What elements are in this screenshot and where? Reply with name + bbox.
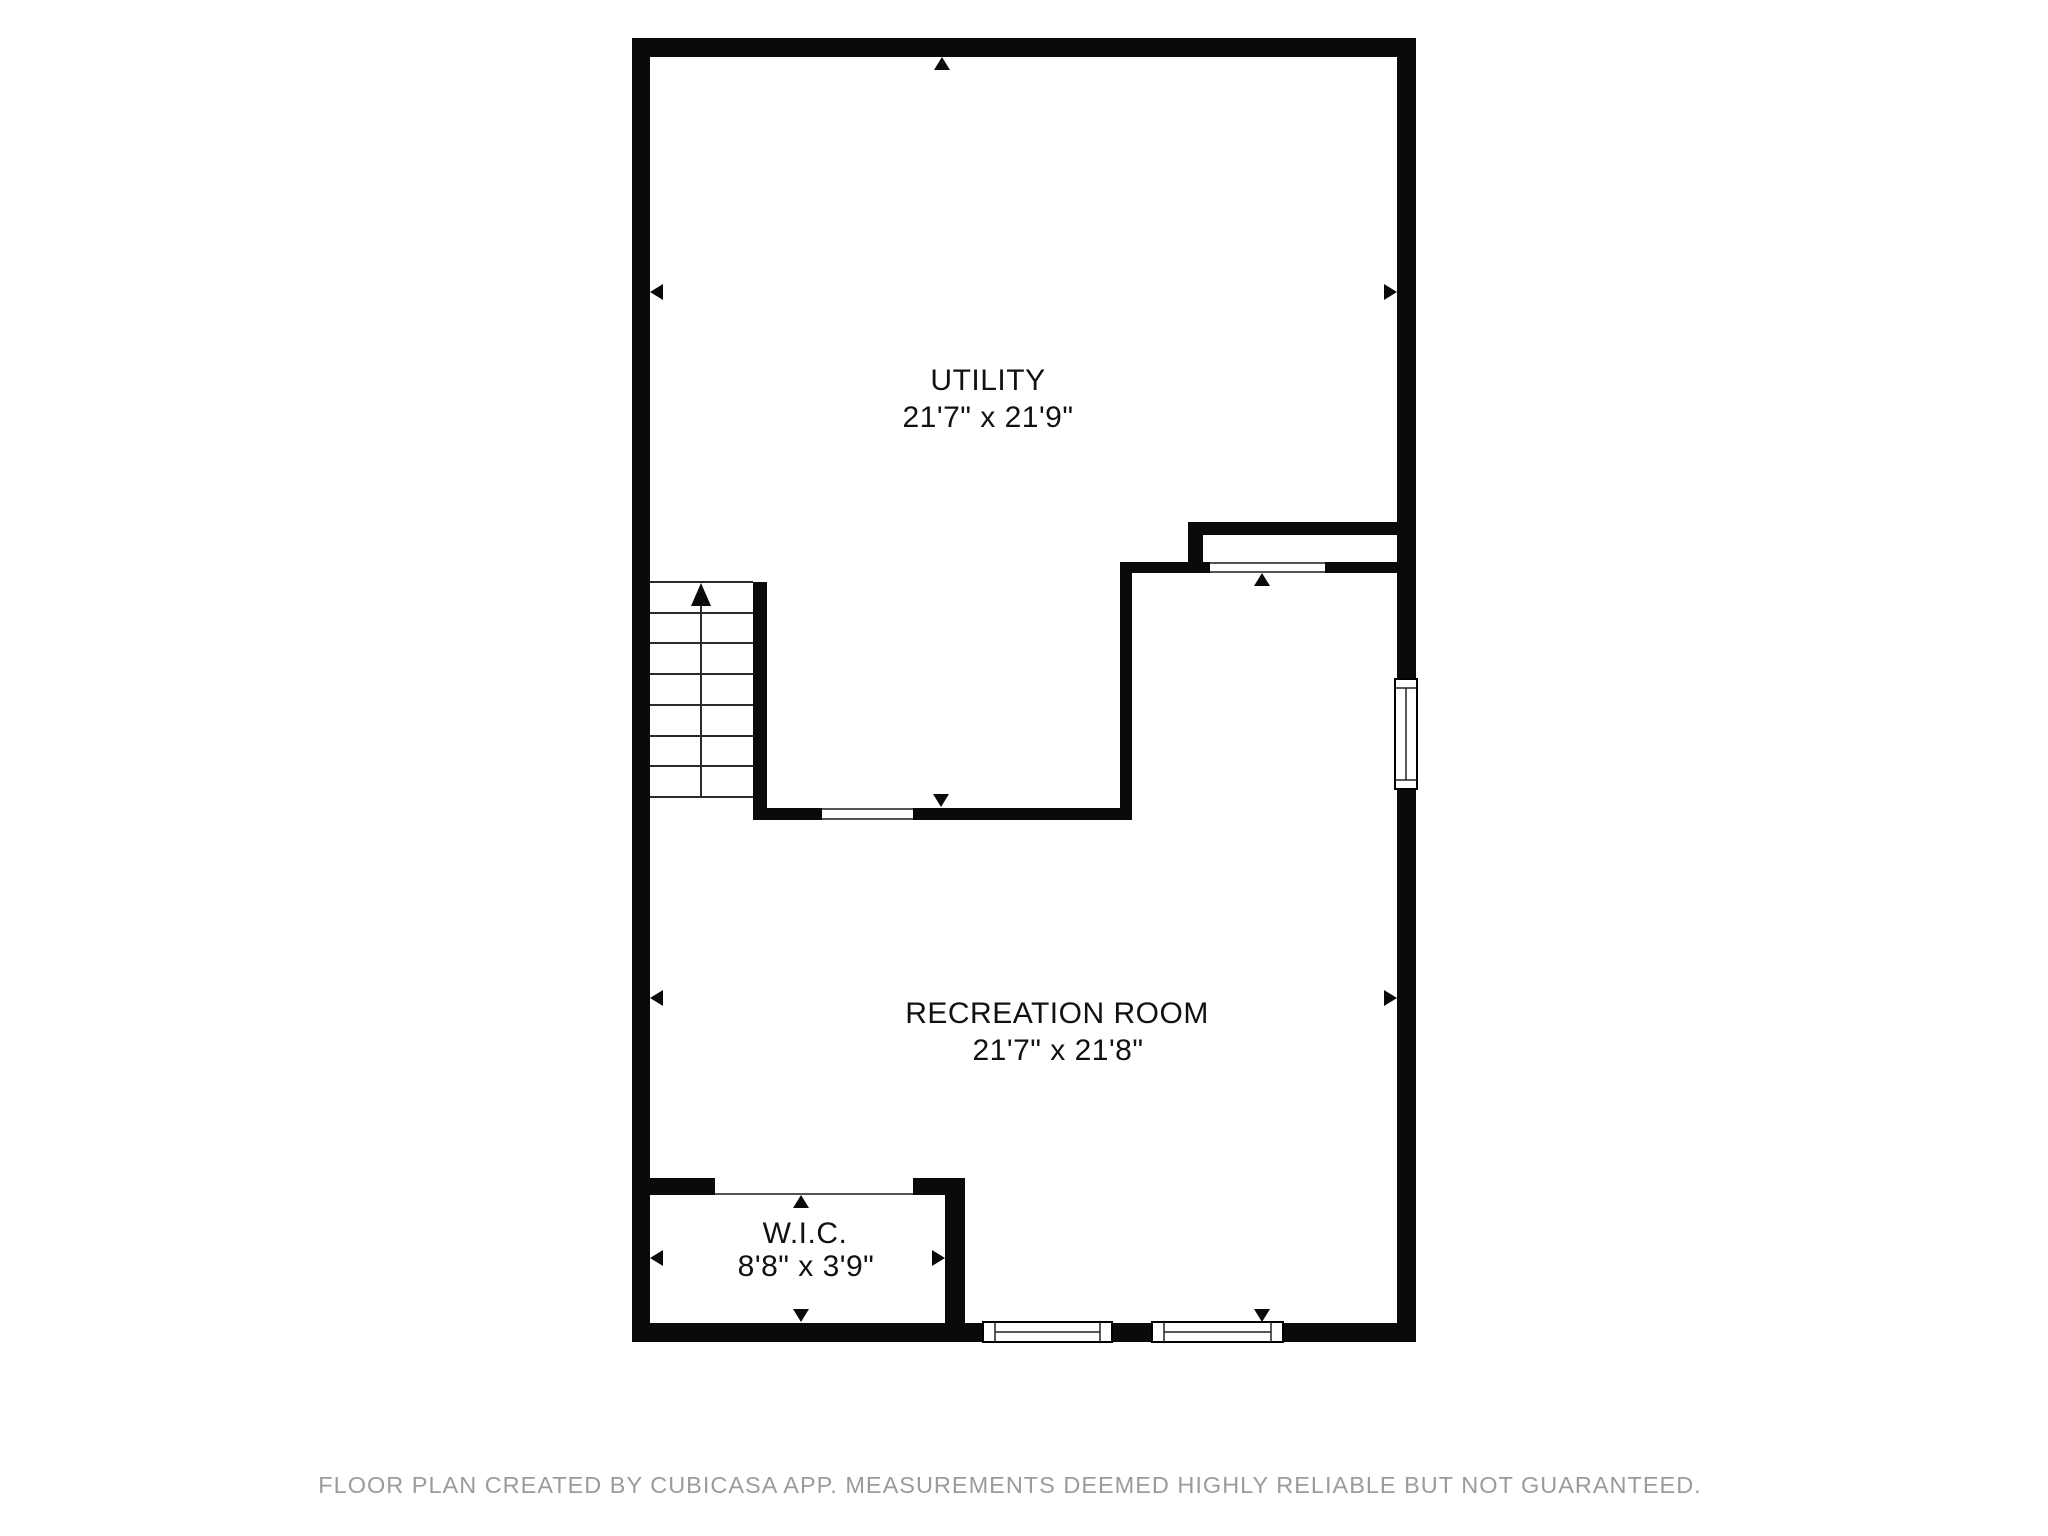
window-bottom-left: [983, 1322, 1112, 1342]
stairs-up-arrow-icon: [691, 583, 711, 606]
measure-arrow-up-icon: [934, 57, 950, 70]
room-label-utility: UTILITY: [930, 364, 1045, 397]
center-vertical-wall: [1120, 562, 1132, 820]
wall-left: [632, 38, 650, 1342]
measure-arrow-down-icon: [793, 1309, 809, 1322]
measure-arrow-up-icon: [793, 1195, 809, 1208]
interior-walls: [650, 522, 1397, 1323]
door-openings: [715, 563, 1325, 1194]
measure-arrow-down-icon: [1254, 1309, 1270, 1322]
wall-bottom-left: [632, 1323, 983, 1342]
wall-right-lower: [1397, 789, 1416, 1342]
measure-arrow-left-icon: [650, 1250, 663, 1266]
room-label-recreation-room: RECREATION ROOM: [905, 997, 1209, 1030]
measure-arrow-right-icon: [1384, 284, 1397, 300]
measure-arrow-right-icon: [1384, 990, 1397, 1006]
wall-right-upper: [1397, 38, 1416, 679]
measure-arrow-left-icon: [650, 284, 663, 300]
niche-upper-wall: [1188, 522, 1397, 535]
staircase: [650, 582, 753, 797]
window-bottom-right: [1152, 1322, 1283, 1342]
wic-top-wall-left: [650, 1178, 715, 1195]
room-label-wic: W.I.C.: [763, 1217, 848, 1250]
measure-arrow-down-icon: [933, 794, 949, 807]
room-dimensions-recreation-room: 21'7" x 21'8": [972, 1034, 1143, 1067]
floor-plan-page: UTILITY 21'7" x 21'9" RECREATION ROOM 21…: [0, 0, 2048, 1536]
measure-arrow-right-icon: [932, 1250, 945, 1266]
window-right-wall: [1395, 679, 1417, 789]
wall-bottom-right: [1283, 1323, 1416, 1342]
exterior-walls: [632, 38, 1416, 1342]
wall-bottom-mid: [1112, 1323, 1152, 1342]
utility-south-wall-left: [753, 808, 822, 820]
floor-plan-canvas: UTILITY 21'7" x 21'9" RECREATION ROOM 21…: [0, 0, 2048, 1536]
wic-right-wall: [945, 1178, 965, 1323]
stair-side-wall: [753, 582, 767, 820]
room-dimensions-utility: 21'7" x 21'9": [902, 401, 1073, 434]
measure-arrow-left-icon: [650, 990, 663, 1006]
niche-lower-wall-right: [1325, 562, 1397, 573]
wall-top: [632, 38, 1416, 57]
room-dimensions-wic: 8'8" x 3'9": [738, 1250, 875, 1283]
niche-stub-wall: [1188, 522, 1203, 573]
utility-south-wall-right: [913, 808, 1132, 820]
measure-arrow-up-icon: [1254, 573, 1270, 586]
footer-disclaimer: FLOOR PLAN CREATED BY CUBICASA APP. MEAS…: [318, 1472, 1701, 1498]
